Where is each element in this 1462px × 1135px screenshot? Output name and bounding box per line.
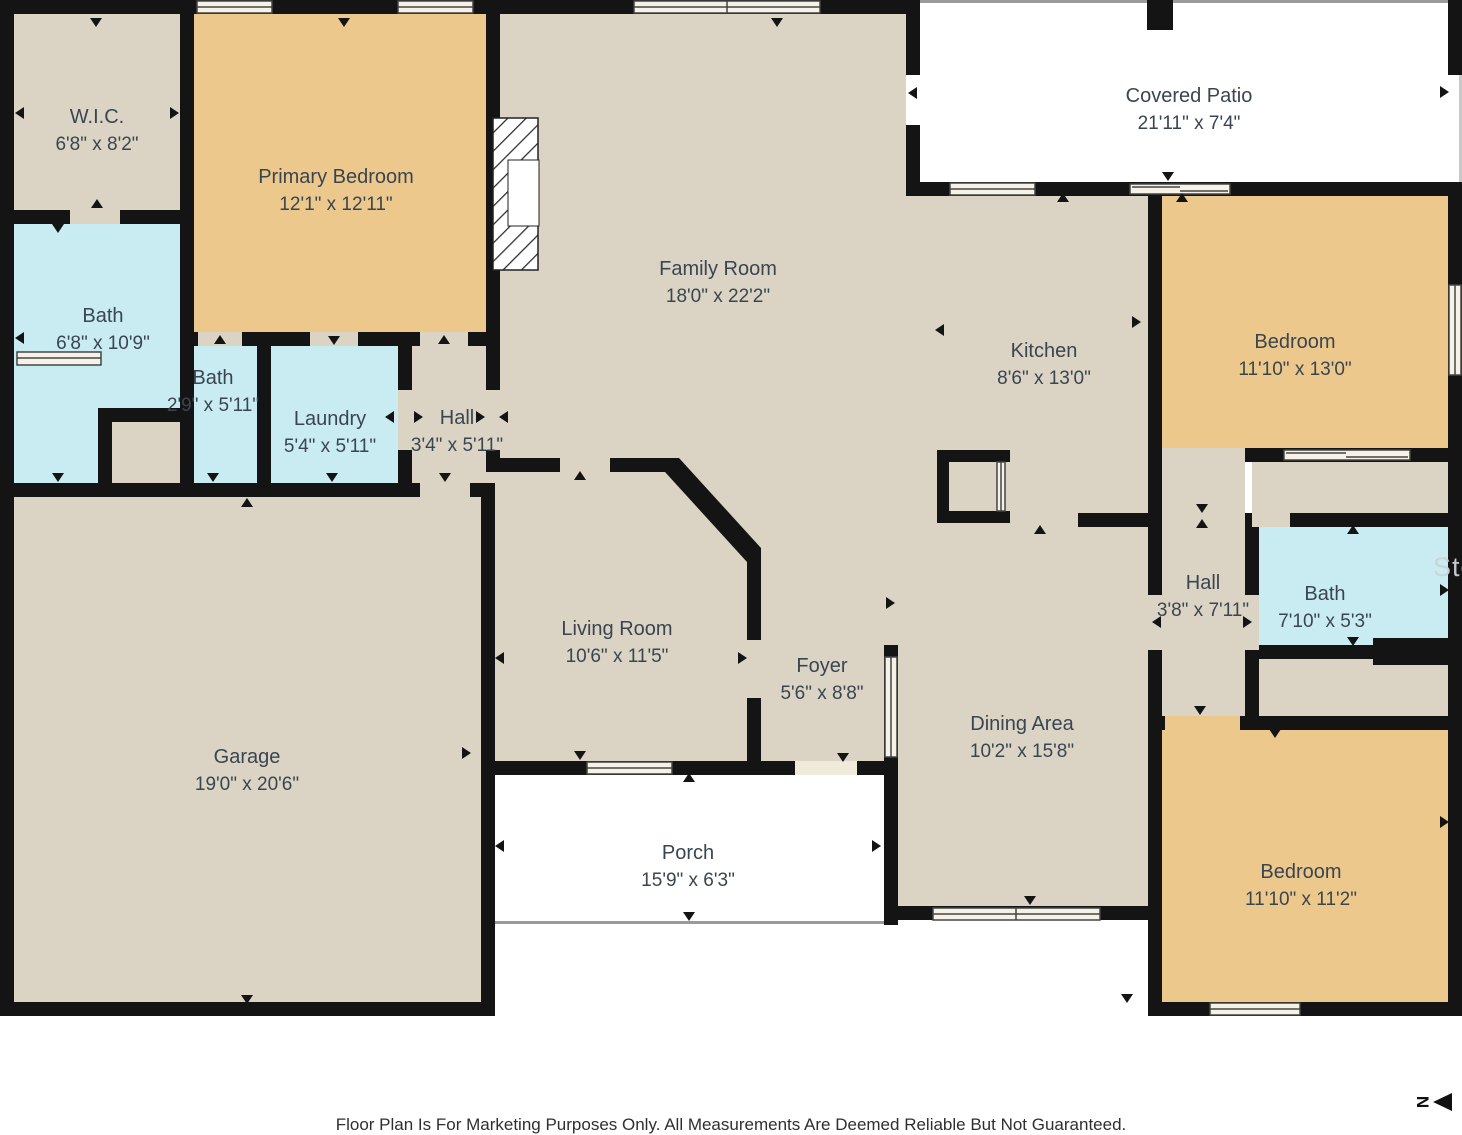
room-dims: 11'10" x 13'0" bbox=[1238, 356, 1351, 383]
room-dims: 11'10" x 11'2" bbox=[1245, 886, 1357, 913]
room-label-bedroom-bottom-right: Bedroom 11'10" x 11'2" bbox=[1245, 859, 1357, 913]
room-name: Kitchen bbox=[997, 338, 1091, 365]
room-dims: 19'0" x 20'6" bbox=[195, 771, 299, 798]
room-name: W.I.C. bbox=[55, 104, 138, 131]
room-label-garage: Garage 19'0" x 20'6" bbox=[195, 744, 299, 798]
room-dims: 5'6" x 8'8" bbox=[780, 680, 863, 707]
window-icon bbox=[1210, 1003, 1300, 1015]
room-name: Bedroom bbox=[1245, 859, 1357, 886]
room-name: Hall bbox=[1157, 570, 1249, 597]
compass: N bbox=[1416, 1092, 1452, 1112]
window-icon bbox=[1449, 285, 1461, 375]
toilet-alcove-floor bbox=[105, 415, 187, 490]
window-icon bbox=[950, 183, 1035, 195]
window-icon bbox=[634, 1, 820, 13]
room-dims: 2'9" x 5'11" bbox=[167, 392, 259, 419]
room-name: Bath bbox=[56, 303, 150, 330]
room-dims: 21'11" x 7'4" bbox=[1126, 110, 1253, 137]
pantry-wall bbox=[937, 511, 1010, 523]
room-label-wic: W.I.C. 6'8" x 8'2" bbox=[55, 104, 138, 158]
room-name: Dining Area bbox=[970, 711, 1074, 738]
room-dims: 8'6" x 13'0" bbox=[997, 365, 1091, 392]
floor-plan-drawing bbox=[0, 0, 1462, 1134]
window-icon bbox=[587, 762, 672, 774]
window-icon bbox=[933, 908, 1100, 920]
compass-north-label: N bbox=[1412, 1096, 1432, 1108]
room-dims: 7'10" x 5'3" bbox=[1278, 608, 1372, 635]
room-dims: 15'9" x 6'3" bbox=[641, 867, 735, 894]
room-label-bath-left: Bath 6'8" x 10'9" bbox=[56, 303, 150, 357]
room-dims: 5'4" x 5'11" bbox=[284, 433, 376, 460]
room-label-family-room: Family Room 18'0" x 22'2" bbox=[659, 256, 777, 310]
room-label-primary-bedroom: Primary Bedroom 12'1" x 12'11" bbox=[258, 164, 414, 218]
room-name: Bath bbox=[167, 365, 259, 392]
room-label-foyer: Foyer 5'6" x 8'8" bbox=[780, 653, 863, 707]
room-label-living-room: Living Room 10'6" x 11'5" bbox=[561, 616, 672, 670]
room-dims: 3'4" x 5'11" bbox=[411, 432, 503, 459]
room-dims: 12'1" x 12'11" bbox=[258, 191, 414, 218]
watermark: Ste bbox=[1433, 552, 1462, 583]
patio-post bbox=[1147, 0, 1173, 30]
room-label-laundry: Laundry 5'4" x 5'11" bbox=[284, 406, 376, 460]
room-name: Bedroom bbox=[1238, 329, 1351, 356]
room-label-hall-right: Hall 3'8" x 7'11" bbox=[1157, 570, 1249, 624]
disclaimer-text: Floor Plan Is For Marketing Purposes Onl… bbox=[0, 1115, 1462, 1135]
room-label-porch: Porch 15'9" x 6'3" bbox=[641, 840, 735, 894]
room-name: Living Room bbox=[561, 616, 672, 643]
room-label-bedroom-top-right: Bedroom 11'10" x 13'0" bbox=[1238, 329, 1351, 383]
room-name: Foyer bbox=[780, 653, 863, 680]
room-dims: 18'0" x 22'2" bbox=[659, 283, 777, 310]
sidelight-window-icon bbox=[885, 657, 897, 757]
room-name: Laundry bbox=[284, 406, 376, 433]
room-dims: 10'6" x 11'5" bbox=[561, 643, 672, 670]
fireplace-icon bbox=[493, 118, 539, 270]
room-name: Covered Patio bbox=[1126, 83, 1253, 110]
room-label-bath-small: Bath 2'9" x 5'11" bbox=[167, 365, 259, 419]
closet-sliding-door-icon bbox=[1284, 450, 1410, 460]
patio-post bbox=[1448, 0, 1462, 75]
room-dims: 6'8" x 8'2" bbox=[55, 131, 138, 158]
room-name: Bath bbox=[1278, 581, 1372, 608]
floor-plan: W.I.C. 6'8" x 8'2" Primary Bedroom 12'1"… bbox=[0, 0, 1462, 1134]
pantry-sliding-door-icon bbox=[997, 462, 1005, 511]
window-icon bbox=[197, 1, 272, 13]
room-dims: 10'2" x 15'8" bbox=[970, 738, 1074, 765]
room-dims: 6'8" x 10'9" bbox=[56, 330, 150, 357]
room-name: Garage bbox=[195, 744, 299, 771]
room-name: Hall bbox=[411, 405, 503, 432]
room-name: Family Room bbox=[659, 256, 777, 283]
room-label-covered-patio: Covered Patio 21'11" x 7'4" bbox=[1126, 83, 1253, 137]
room-dims: 3'8" x 7'11" bbox=[1157, 597, 1249, 624]
compass-arrow-icon bbox=[1433, 1093, 1452, 1111]
room-label-hall-left: Hall 3'4" x 5'11" bbox=[411, 405, 503, 459]
room-label-kitchen: Kitchen 8'6" x 13'0" bbox=[997, 338, 1091, 392]
room-name: Primary Bedroom bbox=[258, 164, 414, 191]
room-label-bath-right: Bath 7'10" x 5'3" bbox=[1278, 581, 1372, 635]
room-label-dining-area: Dining Area 10'2" x 15'8" bbox=[970, 711, 1074, 765]
door-arrow-icon bbox=[1121, 994, 1133, 1003]
room-name: Porch bbox=[641, 840, 735, 867]
window-icon bbox=[398, 1, 473, 13]
sliding-door-icon bbox=[1130, 184, 1230, 194]
